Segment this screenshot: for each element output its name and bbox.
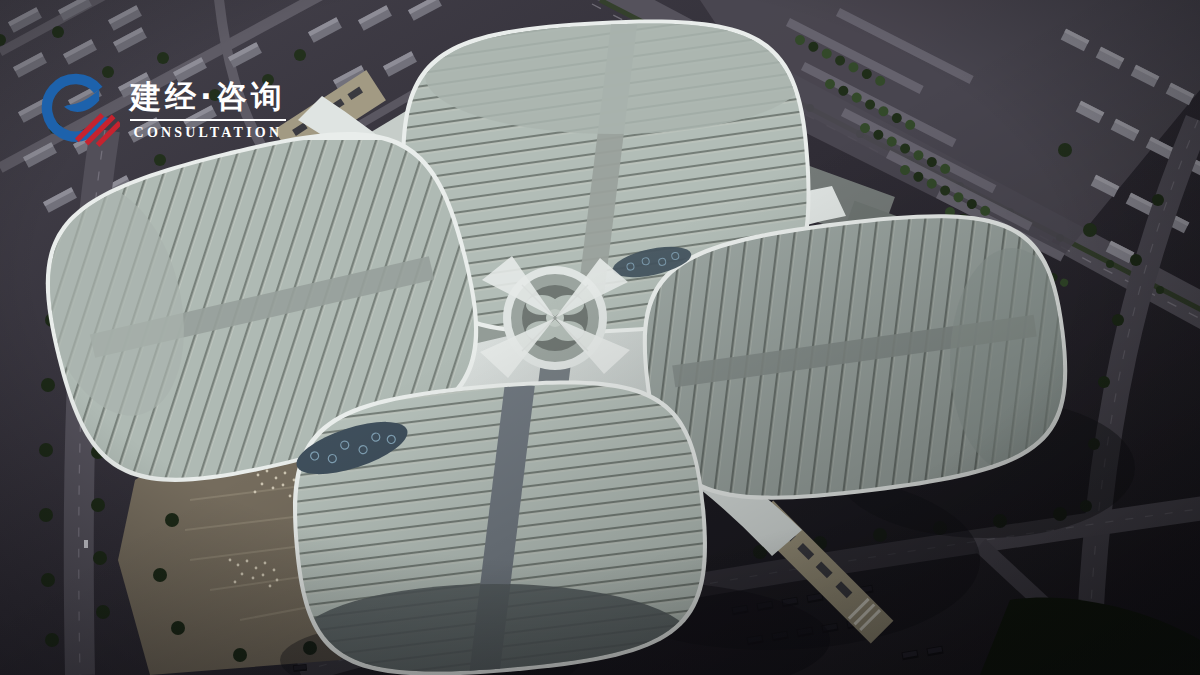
brand-name-english: CONSULTATION: [130, 119, 286, 141]
aerial-rendering-image: 建经·咨询 CONSULTATION: [0, 0, 1200, 675]
ring-swoosh-stripes-icon: [40, 70, 120, 150]
brand-name-chinese: 建经·咨询: [130, 79, 286, 115]
logo-text: 建经·咨询 CONSULTATION: [130, 79, 286, 142]
logo: 建经·咨询 CONSULTATION: [40, 70, 286, 150]
